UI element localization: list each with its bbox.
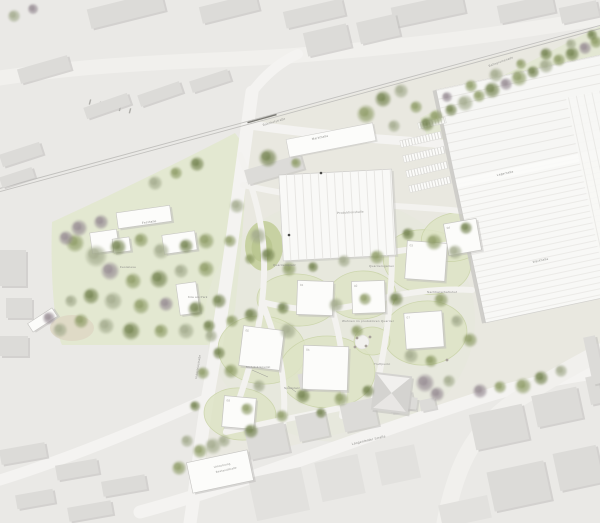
tree [243,423,259,439]
tree [279,322,297,340]
new-building: 01 [296,280,335,317]
context-building [0,336,30,358]
tree [533,370,549,386]
new-building: 07 [404,311,447,352]
tree [459,221,473,235]
map-label: Nachbarschaftshof [427,290,457,294]
production-hall [279,169,398,263]
context-building [0,250,28,288]
tree [70,219,88,237]
tree [149,269,169,289]
tree [64,294,78,308]
tree [450,314,464,328]
map-label: Kita am Park [188,295,208,299]
entrance-dot [320,172,323,175]
tree [539,47,553,61]
site-plan-svg: 0102030405060708BahnhofstraßeBahnpromena… [0,0,600,523]
tree [275,409,289,423]
tree [189,156,205,172]
tree [483,81,501,99]
context-building [87,0,168,31]
context-building-faint [375,444,421,486]
tree [244,253,256,265]
tree [152,242,170,260]
tree [444,103,458,117]
tree [425,233,443,251]
tree [393,83,409,99]
tree [361,384,375,398]
tree [586,29,598,41]
tree [464,79,478,93]
tree [243,307,259,323]
tree [441,91,453,103]
tree [211,293,227,309]
map-label: Quartiersplatz [273,263,296,267]
context-building [17,55,74,86]
tree [258,148,278,168]
tree [409,100,423,114]
plaza-dot [446,359,449,362]
tree [514,377,532,395]
building-number: 02 [354,284,358,288]
tree [369,249,385,265]
tree [223,234,237,248]
map-label: Mobilitätspunkt [246,365,271,369]
tree [7,9,21,23]
tree [442,374,456,388]
tree [169,166,183,180]
building-number: 01 [300,283,304,287]
context-building [189,68,233,94]
tree [173,263,189,279]
tree [419,116,435,132]
context-building [486,460,553,514]
tree [510,69,528,87]
tree [153,323,169,339]
building-number: 06 [306,348,310,352]
crossing-tick [89,99,92,104]
tree [180,434,194,448]
context-building [391,0,468,29]
tree [290,157,302,169]
tree [93,214,109,230]
tree [171,460,187,476]
tree [223,363,239,379]
tree [158,296,174,312]
tree [124,272,142,290]
map-label: Wohnen im produktiven Quartier [342,319,394,323]
context-building [469,403,532,452]
map-label: Spielplatz [284,386,300,390]
tree [27,3,39,15]
plaza-dot [369,336,372,339]
tree [109,238,127,256]
tree [356,104,376,124]
tree [462,332,478,348]
entrance-dot [288,234,291,237]
tree [260,247,276,263]
tree [97,317,115,335]
tree [197,260,215,278]
tree [307,261,319,273]
tree [192,443,208,459]
gabled-building [371,372,415,416]
tree [488,67,504,83]
context-building [199,0,262,26]
tree [202,319,216,333]
tree [197,232,215,250]
tree [401,227,415,241]
tree [447,244,463,260]
tree [249,227,267,245]
new-building: 06 [302,345,351,393]
tree [147,175,163,191]
tree [526,65,540,79]
context-building [553,444,600,493]
context-building [83,92,133,121]
tree [212,346,226,360]
tree [328,297,344,313]
tree [358,292,372,306]
tree [403,348,419,364]
tree [333,391,349,407]
tree [295,388,311,404]
tree [565,38,577,50]
tree [456,94,474,112]
map-label: Quartiersgarten [369,264,394,268]
building-number: 07 [406,315,410,319]
tree [337,254,351,268]
map-label: Festwiese [120,265,136,269]
tree [388,291,404,307]
map-label: Treffpunkt [374,362,390,366]
tree [187,300,205,318]
tree [374,90,392,108]
plaza-dot [365,345,368,348]
context-building [15,488,57,511]
tree [315,407,327,419]
tree [189,400,201,412]
site-plan: 0102030405060708BahnhofstraßeBahnpromena… [0,0,600,523]
context-building [6,298,34,320]
context-building [67,500,115,523]
masterplan-canvas: 0102030405060708BahnhofstraßeBahnpromena… [0,0,600,523]
tree [493,380,507,394]
tree [552,53,566,67]
plaza-dot [354,346,357,349]
tree [350,324,364,338]
tree [82,287,100,305]
tree [100,261,120,281]
context-building [0,141,46,169]
tree [225,314,239,328]
tree [121,321,141,341]
tree [42,311,56,325]
context-building [101,474,149,499]
tree [133,232,149,248]
context-building [137,81,185,109]
tree [240,402,254,416]
tree [178,238,194,254]
building-number: 03 [409,243,413,247]
tree [73,313,89,329]
tree [52,322,68,338]
tree [554,364,568,378]
tree [433,292,449,308]
tree [472,383,488,399]
tree [424,354,438,368]
tree [515,58,527,70]
tree [103,291,123,311]
tree [387,119,401,133]
tree [177,322,195,340]
crossing-tick [129,108,132,113]
tree [276,301,290,315]
tree [252,379,266,393]
tree [429,386,445,402]
tree [132,297,150,315]
tree [229,198,245,214]
context-building-faint [314,454,365,502]
